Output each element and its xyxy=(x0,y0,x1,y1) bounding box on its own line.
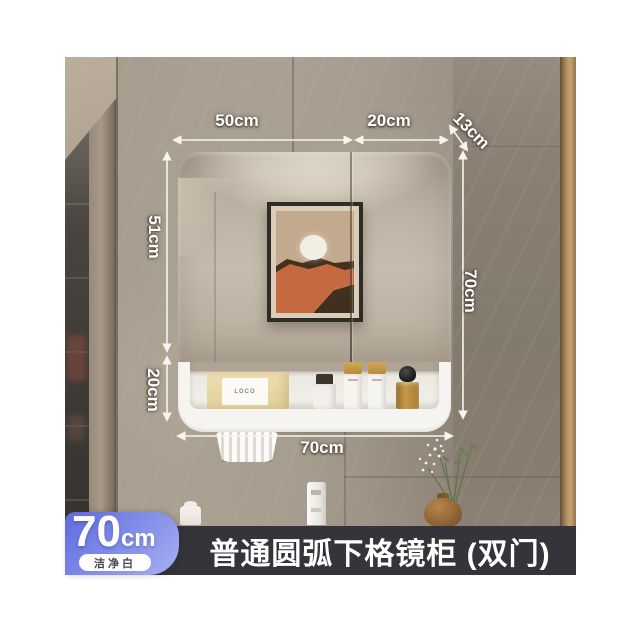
faucet-detail xyxy=(311,508,321,512)
dim-label-overall-height: 70cm xyxy=(460,269,480,312)
hanging-pleated-cup xyxy=(216,432,278,462)
open-shelf: LOCO xyxy=(178,362,451,432)
finish-pill: 洁净白 xyxy=(79,554,151,571)
cabinet-decor-dark xyxy=(68,415,85,441)
shelf-opening: LOCO xyxy=(190,362,439,409)
pump-bottle xyxy=(368,362,386,409)
toiletry-jar xyxy=(180,506,201,525)
tissue-box: LOCO xyxy=(207,372,289,409)
tile-seam xyxy=(453,146,560,147)
wall-corner-line xyxy=(116,57,118,575)
badge-size-unit: cm xyxy=(121,525,156,552)
perfume-cap xyxy=(399,366,416,382)
art-mat xyxy=(271,206,359,318)
mirror-doors xyxy=(178,152,451,362)
product-image: LOCO xyxy=(0,0,640,640)
size-badge: 70cm 洁净白 xyxy=(65,512,179,575)
bottle-cap xyxy=(344,362,362,374)
mirror-reflection-line xyxy=(214,192,216,362)
faucet xyxy=(307,482,326,525)
wood-trim xyxy=(560,57,576,575)
bathroom-photo: LOCO xyxy=(65,57,576,575)
bottle-cap xyxy=(368,362,386,374)
faucet-detail xyxy=(311,490,321,495)
mirror-door-seam xyxy=(350,152,352,362)
mirror-reflection-corner xyxy=(178,178,232,256)
bottle-label xyxy=(372,379,382,381)
badge-size-text: 70cm xyxy=(72,509,156,555)
pump-bottle xyxy=(344,362,362,409)
door-frame xyxy=(89,57,116,575)
perfume-body xyxy=(396,382,419,409)
tile-seam xyxy=(292,57,294,153)
mirror-cabinet: LOCO xyxy=(178,152,451,432)
dim-label-overall-width: 70cm xyxy=(300,438,343,458)
product-title: 普通圆弧下格镜柜 (双门) xyxy=(190,526,570,575)
cabinet-decor-red xyxy=(67,335,86,381)
dim-label-mirror-left-width: 50cm xyxy=(215,111,258,131)
vase-flowers xyxy=(390,423,500,503)
bottle-label xyxy=(348,379,358,381)
tissue-box-label: LOCO xyxy=(222,378,268,405)
cosmetic-jar xyxy=(313,384,336,409)
art-image xyxy=(276,211,354,313)
dim-label-mirror-right-width: 20cm xyxy=(367,111,410,131)
art-sun xyxy=(300,235,327,260)
wall-art-reflection xyxy=(267,202,363,322)
dim-label-mirror-height: 51cm xyxy=(144,215,164,258)
dim-label-shelf-height: 20cm xyxy=(143,368,163,411)
badge-size-value: 70 xyxy=(72,507,121,556)
amber-perfume-bottle xyxy=(396,366,419,409)
